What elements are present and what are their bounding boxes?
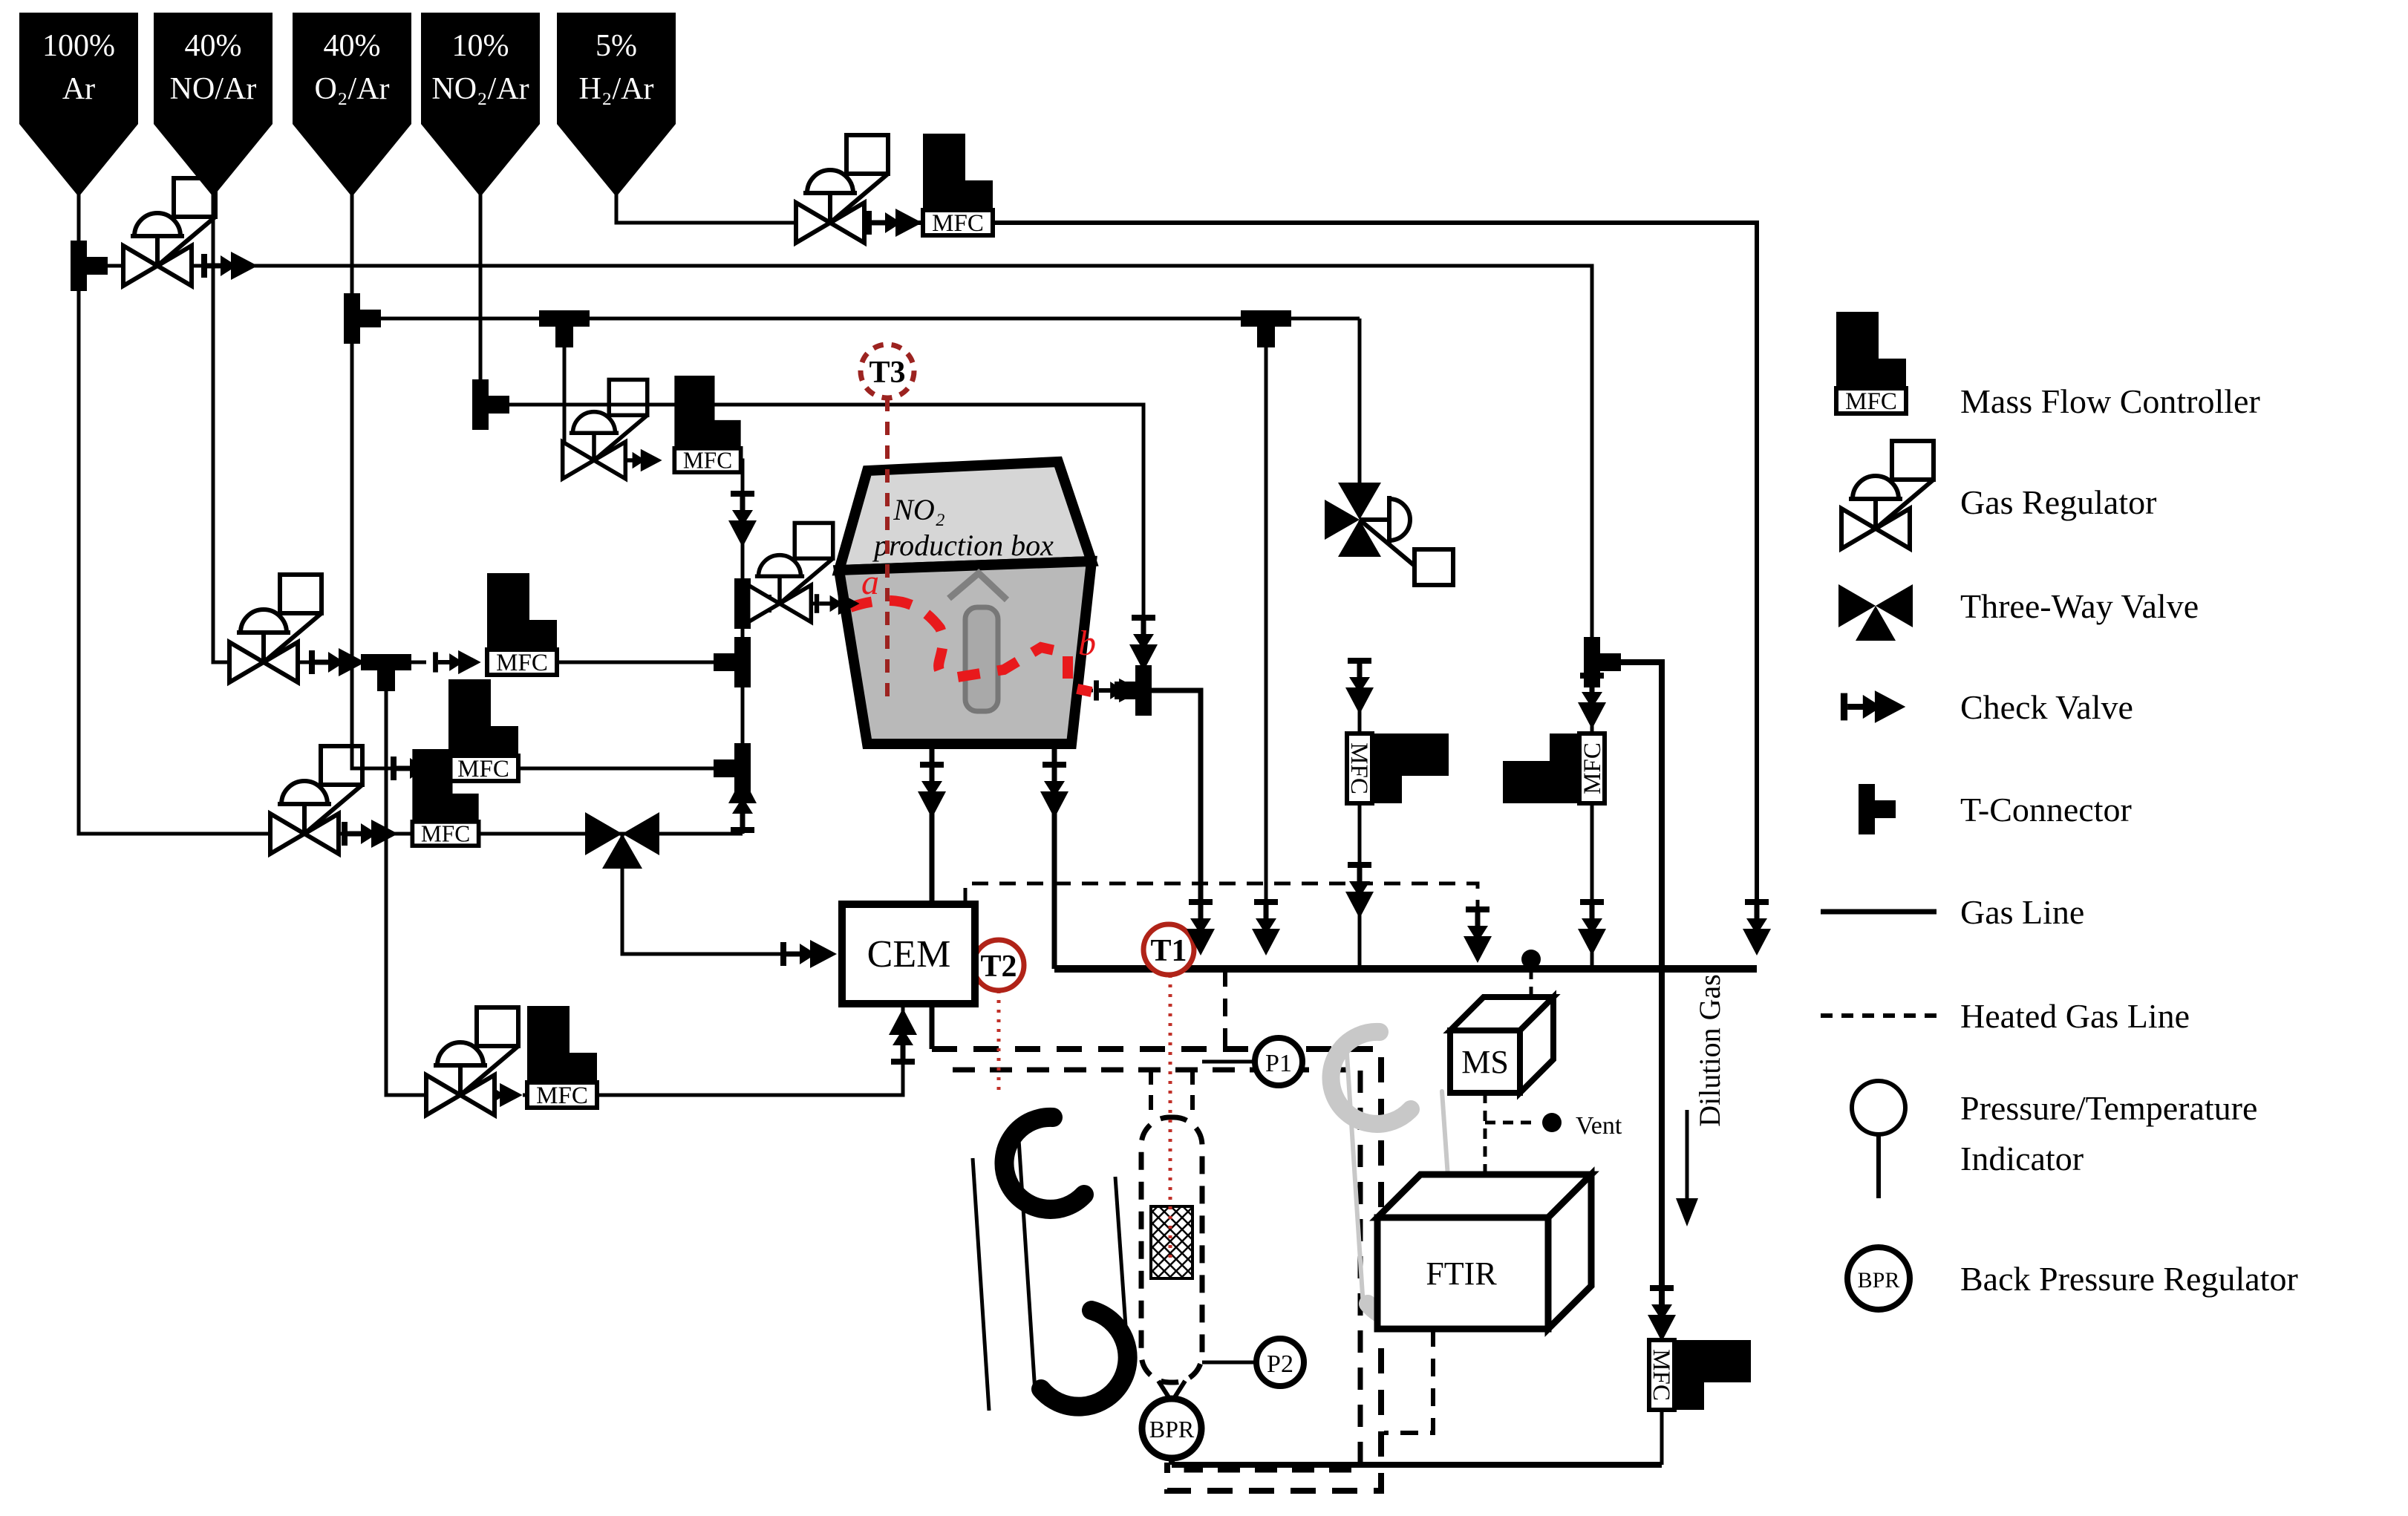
vent-label: Vent	[1576, 1112, 1622, 1140]
check-valve-icon	[1743, 899, 1771, 955]
three-way-valve-icon	[585, 812, 659, 869]
legend-mfc-label: Mass Flow Controller	[1960, 382, 2260, 420]
gas-regulator-icon	[748, 523, 833, 621]
dilution-arrow-head	[1676, 1198, 1698, 1226]
line-mix-vertical	[673, 460, 743, 834]
legend-gas-line-label: Gas Line	[1960, 893, 2084, 931]
cylinder-no-ar: 40% NO/Ar	[154, 13, 273, 197]
legend-gas-regulator-label: Gas Regulator	[1960, 483, 2156, 521]
mfc-label: MFC	[536, 1082, 588, 1109]
annotation-a: a	[861, 563, 879, 602]
box-clasp	[965, 607, 998, 711]
cylinder-label: 100%	[42, 29, 115, 63]
legend: MFC Mass Flow Controller Gas Regulator T…	[1821, 312, 2298, 1310]
line-ar	[79, 193, 270, 834]
bpr-label: BPR	[1149, 1416, 1195, 1443]
check-valve-icon	[1345, 658, 1374, 714]
mfc-no2-line: MFC	[1345, 734, 1449, 803]
legend-bpr-label: Back Pressure Regulator	[1960, 1260, 2298, 1298]
gas-cylinders: 100% Ar 40% NO/Ar 40% O₂/Ar 10% NO₂/Ar 5…	[19, 13, 676, 197]
legend-mfc-icon: MFC	[1836, 312, 1906, 415]
check-valve-icon	[1464, 906, 1492, 963]
mfc-right-line: MFC	[1503, 734, 1606, 803]
cylinder-label: O₂/Ar	[315, 72, 390, 106]
mfc-label: MFC	[932, 210, 984, 237]
box-title-line1: NO₂	[893, 493, 944, 526]
check-valve-icon	[309, 648, 365, 676]
legend-t-connector-icon	[1859, 784, 1896, 834]
mfc-2: MFC	[487, 573, 557, 676]
mfc-label: MFC	[1845, 388, 1897, 415]
cylinder-no2-ar: 10% NO₂/Ar	[421, 13, 540, 197]
legend-pt-indicator-label1: Pressure/Temperature	[1960, 1089, 2257, 1127]
cylinder-o2-ar: 40% O₂/Ar	[293, 13, 411, 197]
cylinder-label: H₂/Ar	[579, 72, 654, 106]
gas-regulator-icon	[229, 575, 322, 682]
mfc-label: MFC	[421, 820, 470, 846]
check-valve-icon	[433, 650, 481, 674]
legend-bpr-icon-label: BPR	[1858, 1268, 1900, 1293]
heated-cem-line	[965, 883, 1478, 927]
line-no-to-bottom	[386, 662, 429, 1095]
vent-dot	[1542, 1113, 1562, 1132]
furnace-shell	[1004, 1117, 1127, 1407]
legend-check-valve-label: Check Valve	[1960, 688, 2133, 726]
legend-gas-regulator-icon	[1841, 441, 1934, 549]
t-connector-icon	[472, 379, 509, 430]
cylinder-label: Ar	[62, 72, 95, 106]
check-valve-icon	[342, 820, 398, 848]
legend-three-way-valve-label: Three-Way Valve	[1960, 587, 2199, 625]
check-valve-icon	[889, 1008, 917, 1065]
figure-page: NO₂ production box a b T3 T1 T2 100% Ar …	[0, 0, 2408, 1516]
check-valve-icon	[1578, 899, 1606, 955]
ms-vent-dot	[1521, 950, 1541, 969]
t-connector-icon	[344, 293, 381, 344]
cylinder-label: NO/Ar	[170, 72, 257, 106]
line-bpr-out	[1172, 1458, 1662, 1465]
three-way-valve-with-regulator	[1325, 483, 1453, 585]
check-valve-icon	[1252, 899, 1280, 955]
box-title-line2: production box	[872, 529, 1054, 562]
t-connector-icon	[361, 654, 411, 691]
legend-t-connector-label: T-Connector	[1960, 791, 2132, 829]
cylinder-label: 5%	[596, 29, 637, 63]
cem-unit: CEM	[842, 904, 975, 1004]
ms-label: MS	[1461, 1044, 1509, 1080]
check-valve-icon	[1578, 673, 1606, 729]
flow-diagram: NO₂ production box a b T3 T1 T2 100% Ar …	[0, 0, 2408, 1516]
line-h2	[616, 193, 797, 223]
mfc-1: MFC	[674, 376, 740, 473]
mfc-dilution: MFC	[1648, 1340, 1751, 1410]
mfc-5: MFC	[527, 1006, 597, 1109]
mfc-label: MFC	[1648, 1349, 1674, 1401]
t-connector-icon	[1241, 310, 1291, 347]
cem-label: CEM	[867, 933, 951, 976]
analyzers: MS Vent FTIR	[1377, 950, 1622, 1329]
check-valve-icon	[1648, 1285, 1676, 1342]
t3-label: T3	[869, 356, 905, 390]
legend-heated-gas-line-label: Heated Gas Line	[1960, 997, 2190, 1035]
mfc-3: MFC	[448, 679, 518, 782]
check-valve-icon	[780, 940, 837, 968]
legend-pt-indicator-label2: Indicator	[1960, 1140, 2084, 1177]
mfc-label: MFC	[683, 447, 732, 473]
t-connector-icon	[714, 637, 751, 687]
p1-label: P1	[1265, 1050, 1292, 1077]
check-valve-icon	[866, 209, 922, 237]
check-valve-icon	[1345, 862, 1374, 918]
check-valve-icon	[1040, 762, 1068, 818]
dilution-gas-annotation: Dilution Gas	[1676, 974, 1726, 1226]
mfc-label: MFC	[1579, 742, 1606, 794]
p2-label: P2	[1267, 1350, 1293, 1378]
no2-production-box: NO₂ production box a b	[839, 462, 1096, 744]
cylinder-label: 40%	[185, 29, 242, 63]
cylinder-h2-ar: 5% H₂/Ar	[557, 13, 676, 197]
legend-three-way-valve-icon	[1838, 584, 1913, 641]
gas-regulator-icon	[796, 135, 888, 243]
line-3wv-to-cem	[622, 834, 789, 954]
t2-label: T2	[980, 950, 1017, 984]
regulator-actuator-icon	[1360, 496, 1453, 585]
mfc-label: MFC	[1345, 742, 1372, 794]
cylinder-label: NO₂/Ar	[431, 72, 529, 106]
cylinder-ar: 100% Ar	[19, 13, 138, 197]
cylinder-label: 40%	[324, 29, 381, 63]
check-valve-icon	[201, 252, 258, 280]
heated-ftir-drop	[1384, 1329, 1433, 1433]
annotation-b: b	[1078, 624, 1096, 663]
furnace-shell-3d-lines	[973, 1140, 1127, 1411]
dilution-gas-label: Dilution Gas	[1693, 974, 1726, 1127]
check-valve-icon	[728, 491, 757, 547]
legend-pt-indicator-icon	[1852, 1081, 1905, 1198]
legend-check-valve-icon	[1841, 690, 1905, 723]
mfc-h2: MFC	[923, 134, 993, 237]
gas-regulator-icon	[270, 746, 362, 854]
ftir-label: FTIR	[1426, 1255, 1497, 1292]
t-connector-icon	[71, 241, 108, 291]
t1-label: T1	[1150, 934, 1187, 968]
mfc-label: MFC	[496, 650, 548, 676]
mfc-label: MFC	[457, 756, 509, 782]
reactor-section	[973, 1070, 1202, 1411]
t-connector-icon	[539, 310, 590, 347]
check-valve-icon	[918, 762, 946, 818]
check-valve-icon	[728, 777, 757, 833]
check-valve-icon	[1129, 615, 1158, 671]
cylinder-label: 10%	[452, 29, 509, 63]
